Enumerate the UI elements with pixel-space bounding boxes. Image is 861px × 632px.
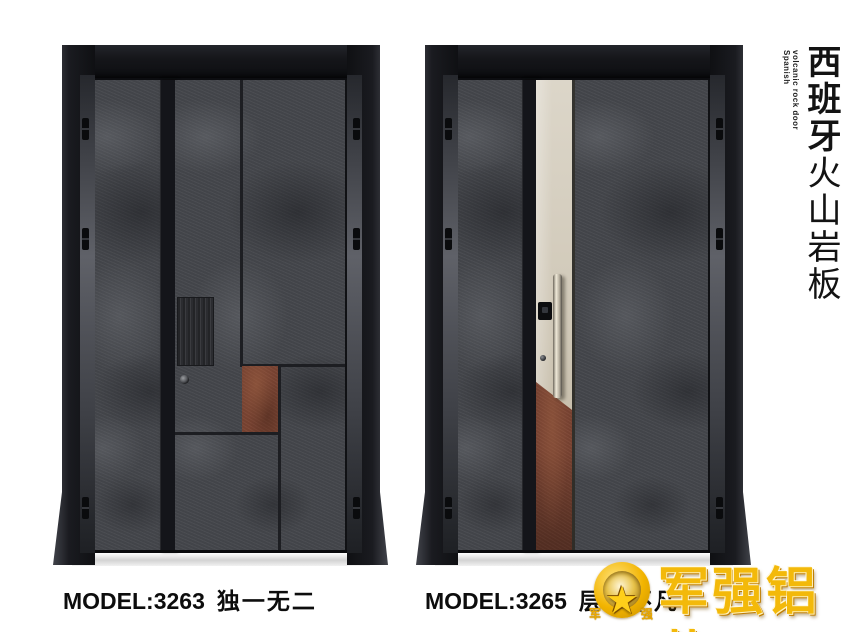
door-product-3265 bbox=[425, 45, 743, 565]
frame-reveal-right bbox=[347, 75, 362, 553]
hinge bbox=[353, 118, 360, 140]
smart-lock bbox=[538, 302, 552, 320]
leaf-edge-line bbox=[345, 80, 347, 552]
keyhole bbox=[540, 355, 546, 361]
door-product-3263 bbox=[62, 45, 380, 565]
hinge bbox=[82, 497, 89, 519]
door-frame-top bbox=[62, 45, 380, 78]
main-leaf-panel bbox=[575, 80, 708, 552]
hinge bbox=[82, 118, 89, 140]
door-slab bbox=[458, 78, 710, 550]
model-name: 独一无二 bbox=[217, 588, 317, 614]
hinge bbox=[445, 497, 452, 519]
product-series-subtitle-en: Spanish volcanic rock door bbox=[782, 50, 800, 170]
hinge bbox=[445, 228, 452, 250]
frame-reveal-left bbox=[443, 75, 458, 553]
lock-plate bbox=[177, 297, 214, 366]
floor-reflection bbox=[72, 553, 370, 566]
badge-char-right: 强 bbox=[641, 605, 653, 622]
door-frame-top bbox=[425, 45, 743, 78]
product-series-title: 西班牙火山岩板 bbox=[802, 44, 840, 303]
model-number: MODEL:3263 bbox=[63, 588, 205, 614]
hinge bbox=[353, 497, 360, 519]
badge-char-left: 军 bbox=[589, 605, 601, 622]
star-icon: ★ bbox=[605, 582, 639, 620]
panel-groove bbox=[278, 366, 281, 552]
door-bottom-rail bbox=[95, 550, 347, 553]
hinge bbox=[716, 228, 723, 250]
panel-groove bbox=[240, 80, 243, 366]
panel-groove bbox=[175, 432, 278, 435]
title-light-part: 火山岩板 bbox=[802, 155, 840, 303]
model-label-3263: MODEL:3263独一无二 bbox=[63, 582, 317, 616]
leaf-edge-line bbox=[708, 80, 710, 552]
hinge bbox=[716, 118, 723, 140]
vertical-handle-bar bbox=[522, 80, 537, 552]
frame-reveal-left bbox=[80, 75, 95, 553]
copper-accent-panel bbox=[242, 366, 278, 432]
door-bottom-rail bbox=[458, 550, 710, 553]
side-leaf-panel bbox=[458, 80, 522, 552]
hinge bbox=[716, 497, 723, 519]
title-bold-part: 西班牙 bbox=[802, 44, 840, 155]
frame-reveal-right bbox=[710, 75, 725, 553]
model-number: MODEL:3265 bbox=[425, 588, 567, 614]
subtitle-line-2: volcanic rock door bbox=[791, 50, 800, 170]
door-handle bbox=[553, 274, 562, 398]
door-slab bbox=[95, 78, 347, 550]
side-leaf-panel bbox=[95, 80, 160, 552]
hinge bbox=[353, 228, 360, 250]
hinge bbox=[82, 228, 89, 250]
hinge bbox=[445, 118, 452, 140]
brand-name: 军强铝艺 bbox=[658, 560, 861, 632]
vertical-handle-bar bbox=[160, 80, 176, 552]
keyhole bbox=[180, 375, 189, 384]
brand-logo: ★ 军 强 军强铝艺 bbox=[588, 560, 861, 632]
catalog-page: Spanish volcanic rock door 西班牙火山岩板 MODEL… bbox=[0, 0, 861, 632]
main-leaf-panel bbox=[175, 80, 345, 552]
copper-accent-strip bbox=[536, 380, 572, 552]
brand-badge: ★ 军 强 bbox=[588, 560, 654, 628]
subtitle-line-1: Spanish bbox=[782, 50, 791, 170]
